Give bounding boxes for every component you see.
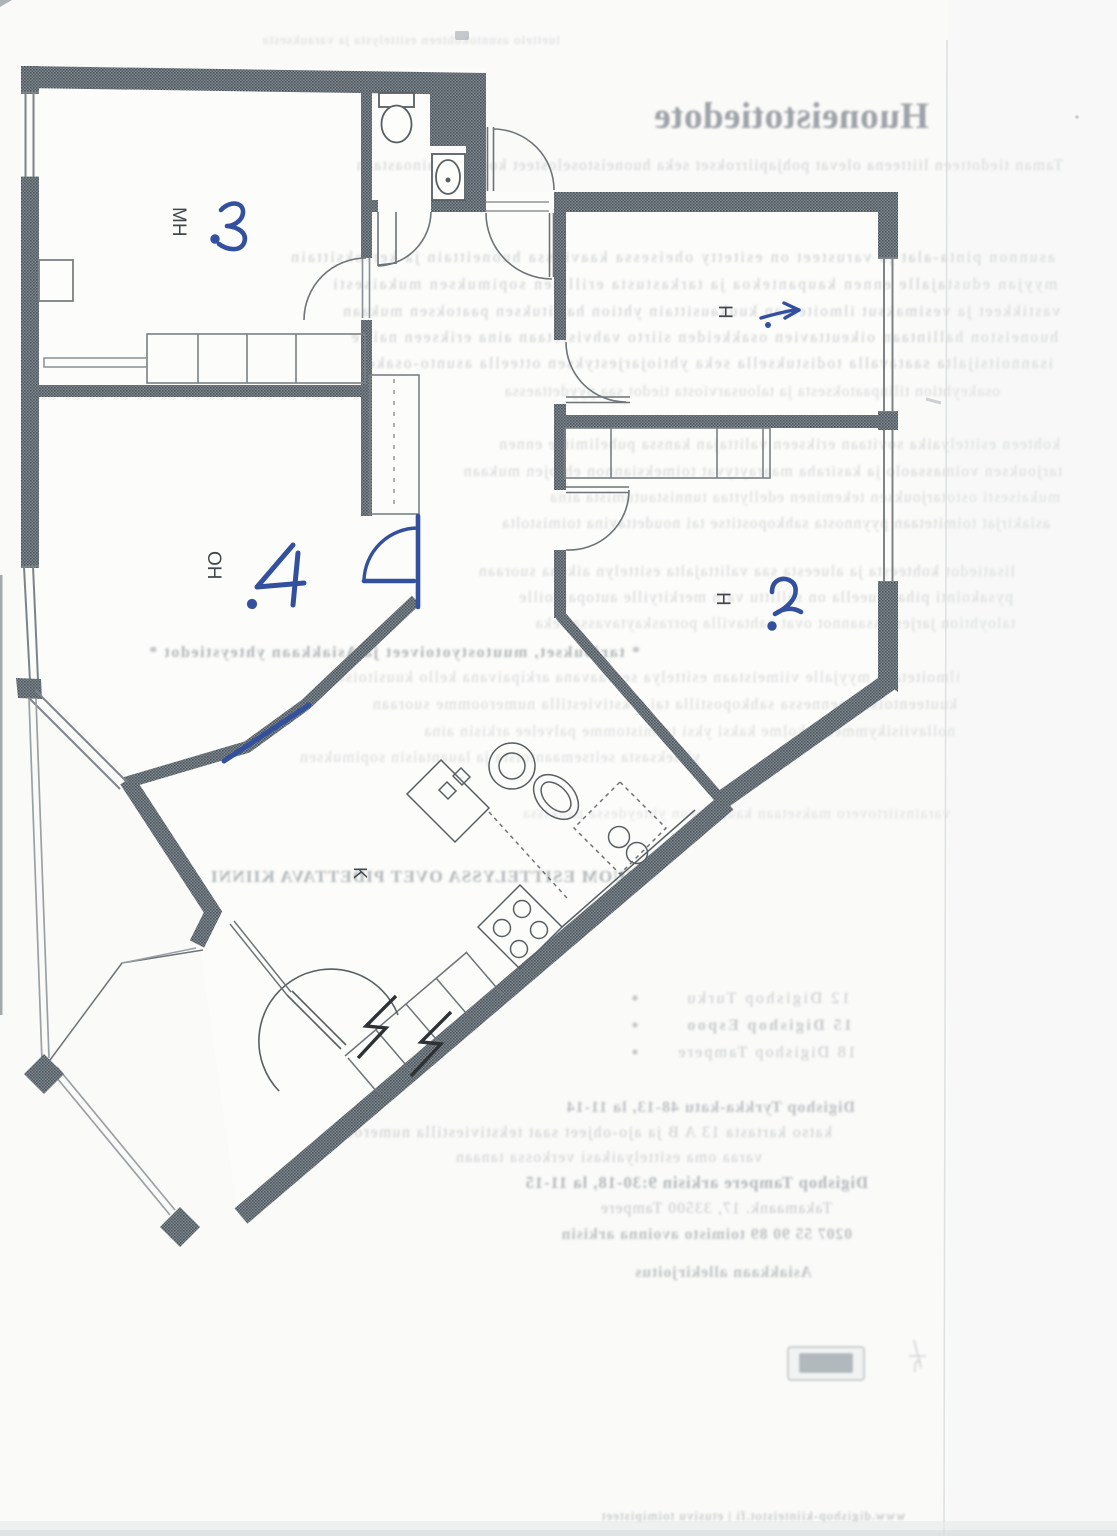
svg-text:varaa oma esittelyaikasi verko: varaa oma esittelyaikasi verkossa tanaan <box>455 1149 762 1166</box>
svg-text:0207 55 90 89 toimisto avoinna: 0207 55 90 89 toimisto avoinna arkisin <box>561 1226 852 1243</box>
svg-text:OH: OH <box>203 551 224 580</box>
svg-text:varainsiirtovero maksetaan kau: varainsiirtovero maksetaan kaupanteon yh… <box>522 806 950 822</box>
svg-text:pysakointi piha-alueella on sa: pysakointi piha-alueella on sallittu vai… <box>518 589 1013 606</box>
svg-text:HUOM ESITTELYSSA OVET PIDETTAV: HUOM ESITTELYSSA OVET PIDETTAVA KIINNI <box>210 867 640 886</box>
svg-text:15 Digishop Espoo: 15 Digishop Espoo <box>685 1017 852 1034</box>
svg-text:12 Digishop Turku: 12 Digishop Turku <box>685 990 850 1007</box>
svg-text:K: K <box>350 867 370 879</box>
svg-text:www.digishop-kiinteistot.fi |: www.digishop-kiinteistot.fi | etusivu to… <box>601 1509 905 1523</box>
svg-text:Digishop Tyrkka-katu 48-13, la: Digishop Tyrkka-katu 48-13, la 11-14 <box>566 1099 855 1116</box>
svg-text:H: H <box>712 592 733 606</box>
svg-text:katso kartasta 13 A B ja ajo-o: katso kartasta 13 A B ja ajo-ohjeet saat… <box>331 1124 832 1141</box>
svg-text:Huoneistotiedote: Huoneistotiedote <box>654 96 929 137</box>
svg-text:Takamaank. 17, 33500 Tampere: Takamaank. 17, 33500 Tampere <box>600 1200 832 1217</box>
svg-text:Digishop Tampere arkisin 9:30-: Digishop Tampere arkisin 9:30-18, la 11-… <box>525 1173 868 1192</box>
svg-text:18 Digishop Tampere: 18 Digishop Tampere <box>676 1044 856 1061</box>
svg-text:MH: MH <box>168 207 189 237</box>
svg-text:asunnon pinta-alat ja varustee: asunnon pinta-alat ja varusteet on esite… <box>289 249 1055 266</box>
svg-text:Asiakkaan allekirjoitus: Asiakkaan allekirjoitus <box>634 1264 812 1281</box>
svg-text:H: H <box>714 305 735 319</box>
svg-text:ilmoitetaan myyjalle viimeista: ilmoitetaan myyjalle viimeistaan esittel… <box>330 669 960 686</box>
svg-text:* tarjoukset, muutostyotoiveet: * tarjoukset, muutostyotoiveet ja Asiakk… <box>148 644 640 661</box>
svg-text:nollaviisikymmenta kolme kaksi: nollaviisikymmenta kolme kaksi yksi toim… <box>423 723 955 740</box>
svg-text:luettelo asuntokohteen esittel: luettelo asuntokohteen esittelysta ja va… <box>262 32 560 47</box>
